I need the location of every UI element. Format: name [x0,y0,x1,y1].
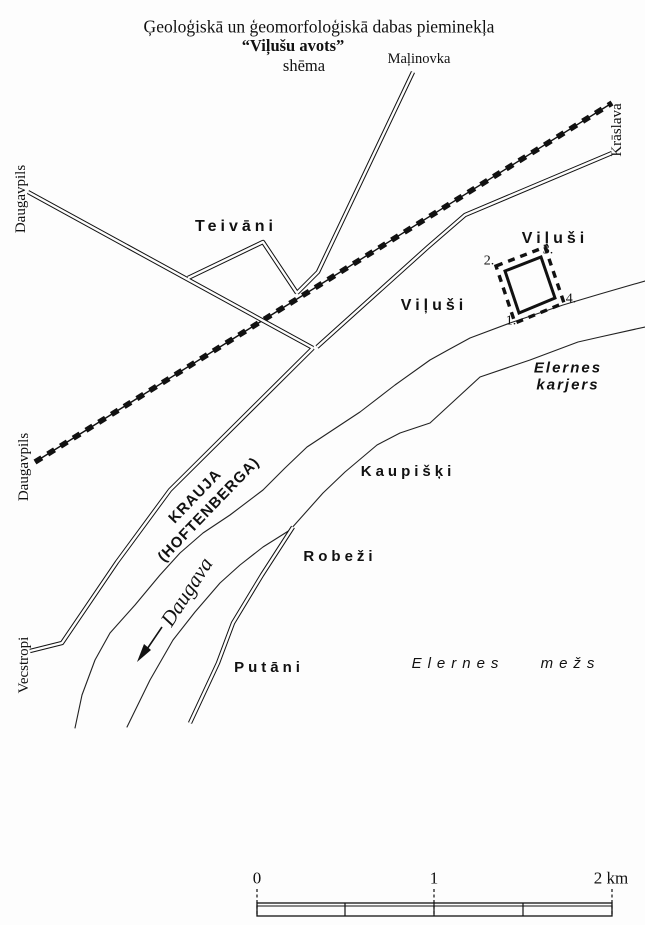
map-page: Ģeoloģiskā un ģeomorfoloģiskā dabas piem… [0,0,645,925]
label-elernes-karjers-line1: Elernes [534,361,602,378]
label-daugavpils-mid: Daugavpils [16,433,33,501]
daugava-flow-arrow [137,627,162,662]
scale-label-1: 1 [430,870,439,889]
label-elernes-karjers-line2: karjers [534,377,602,394]
scale-label-0: 0 [253,870,262,889]
label-elernes-karjers: Elernes karjers [534,361,602,394]
map-title-line2: “Viļušu avots” [242,37,345,55]
label-daugavpils-top: Daugavpils [13,165,30,233]
map-title-line1: Ģeoloģiskā un ģeomorfoloģiskā dabas piem… [144,17,495,36]
label-elernes-mezs: Elernes mežs [412,656,601,673]
map-linework [0,0,645,925]
label-kraslava: Krāslava [609,103,626,156]
label-vilusi-ne: Viļuši [522,230,588,248]
label-putani: Putāni [234,660,304,677]
monument-corner-1: 1. [506,313,517,328]
monument-square [505,257,555,313]
monument-corner-2: 2. [484,253,495,268]
label-kaupiski: Kaupišķi [361,464,456,481]
map-title-line3: shēma [283,57,325,75]
monument-corner-4: 4. [566,291,577,306]
scale-label-2km: 2 km [594,870,628,889]
label-malinovka: Maļinovka [388,52,451,68]
label-vecstropi: Vecstropi [16,637,33,694]
label-robezi: Robeži [303,549,376,566]
label-teivani: Teivāni [195,218,277,236]
road-robezi-casing [190,527,293,723]
road-daugavpils-fill [28,192,313,348]
scale-bar [257,889,612,916]
monument-corner-3: 3. [543,242,554,257]
label-vilusi-center: Viļuši [401,297,467,315]
